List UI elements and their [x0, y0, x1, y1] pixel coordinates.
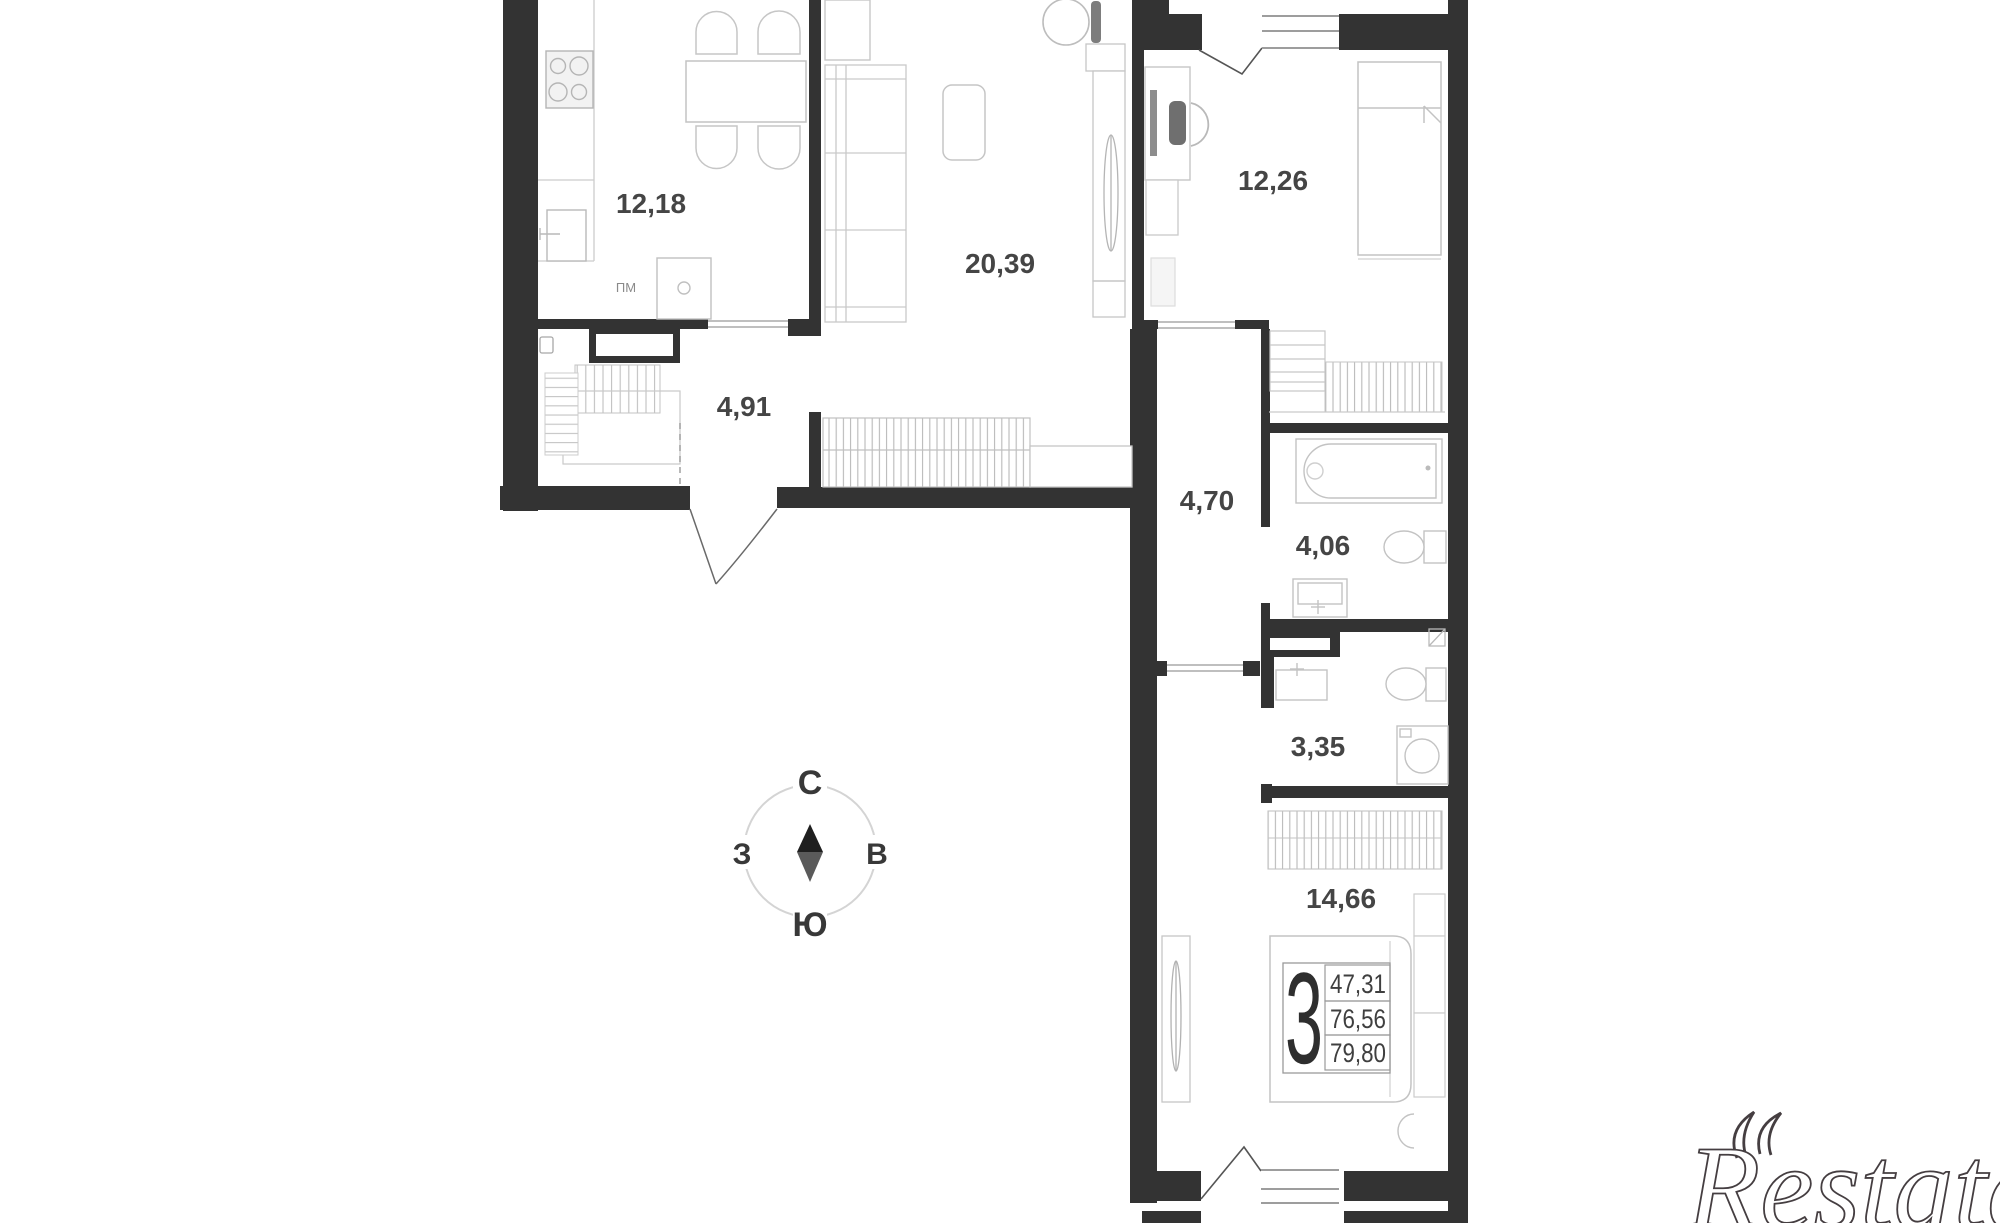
svg-text:20,39: 20,39 [965, 248, 1035, 279]
svg-text:С: С [798, 764, 823, 802]
svg-text:4,06: 4,06 [1296, 530, 1351, 561]
svg-text:79,80: 79,80 [1330, 1038, 1386, 1068]
svg-text:76,56: 76,56 [1330, 1004, 1386, 1034]
svg-text:12,26: 12,26 [1238, 165, 1308, 196]
svg-text:3,35: 3,35 [1291, 731, 1346, 762]
svg-text:4,91: 4,91 [717, 391, 772, 422]
svg-text:47,31: 47,31 [1330, 969, 1386, 999]
svg-text:4,70: 4,70 [1180, 485, 1235, 516]
svg-text:В: В [866, 838, 888, 871]
svg-text:3: 3 [1285, 945, 1323, 1091]
svg-text:Restate: Restate [1686, 1121, 2000, 1223]
svg-text:12,18: 12,18 [616, 188, 686, 219]
svg-text:З: З [733, 838, 752, 871]
svg-text:14,66: 14,66 [1306, 883, 1376, 914]
svg-text:Ю: Ю [792, 906, 827, 944]
svg-text:ПМ: ПМ [616, 280, 636, 295]
